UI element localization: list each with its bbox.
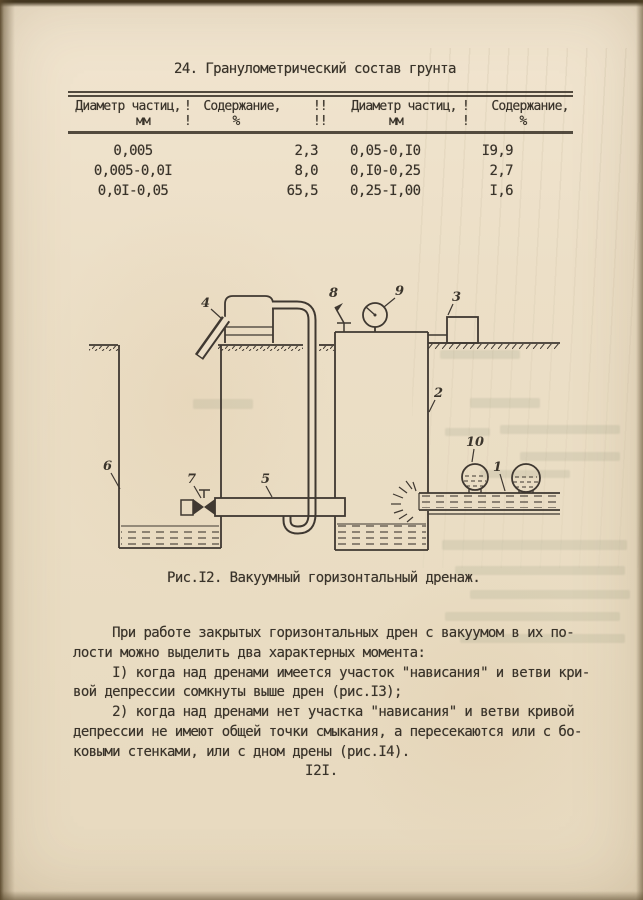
header-separator: !! xyxy=(313,114,327,129)
bleed-through-text xyxy=(470,590,630,599)
figure-label-7: 7 xyxy=(187,472,196,487)
scan-edge-left xyxy=(0,0,15,900)
col2-header-label: Содержание, xyxy=(203,99,281,114)
body-line: При работе закрытых горизонтальных дрен … xyxy=(73,624,593,644)
scanned-page: 24. Гранулометрический состав грунта Диа… xyxy=(0,0,643,900)
table-cell: 0,005 xyxy=(88,143,178,160)
vacuum-gauge xyxy=(363,303,387,332)
table-cell: 0,25-I,00 xyxy=(350,183,440,200)
table-rule-top-1 xyxy=(68,91,573,93)
body-line: депрессии не имеют общей точки смыкания,… xyxy=(73,723,593,743)
bleed-through-text xyxy=(445,612,620,621)
ground-surface-right xyxy=(428,343,560,349)
col3-header-label: Диаметр частиц, xyxy=(348,99,460,114)
table-cell: 2,3 xyxy=(230,143,318,160)
col4-header-label: Содержание, xyxy=(487,99,573,114)
body-line: 2) когда над дренами нет участка "нависа… xyxy=(73,703,593,723)
col4-header-unit: % xyxy=(480,114,566,129)
header-separator: ! xyxy=(184,114,191,129)
header-separator: !! xyxy=(313,99,327,114)
figure-label-3: 3 xyxy=(452,290,461,305)
scan-edge-top xyxy=(0,0,643,7)
body-line: ковыми стенками, или с дном дрены (рис.I… xyxy=(73,743,593,763)
col2-header-unit: % xyxy=(197,114,275,129)
table-cell: 0,I0-0,25 xyxy=(350,163,440,180)
suction-pipe xyxy=(272,305,312,530)
table-cell: 2,7 xyxy=(433,163,513,180)
vacuum-tank xyxy=(335,332,428,550)
scan-edge-right xyxy=(636,0,643,900)
left-well xyxy=(119,345,221,548)
drain-pipe xyxy=(419,493,560,514)
body-line: I) когда над дренами имеется участок "на… xyxy=(73,664,593,684)
table-cell: 8,0 xyxy=(230,163,318,180)
table-rule-header-bottom xyxy=(68,131,573,134)
figure-label-5: 5 xyxy=(261,472,270,487)
figure-caption: Рис.I2. Вакуумный горизонтальный дренаж. xyxy=(167,570,480,586)
col3-header-unit: мм xyxy=(340,114,452,129)
table-cell: I9,9 xyxy=(433,143,513,160)
table-cell: 0,05-0,I0 xyxy=(350,143,440,160)
header-separator: ! xyxy=(462,114,469,129)
header-separator: ! xyxy=(184,99,191,114)
table-cell: 65,5 xyxy=(230,183,318,200)
body-line: лости можно выделить два характерных мом… xyxy=(73,644,593,664)
header-separator: ! xyxy=(462,99,469,114)
table-cell: 0,0I-0,05 xyxy=(88,183,178,200)
valve-8 xyxy=(335,303,351,332)
figure-drainage-diagram: 4 8 9 3 2 6 7 5 10 1 xyxy=(85,283,565,578)
col1-header-unit: мм xyxy=(87,114,199,129)
figure-label-9: 9 xyxy=(395,284,404,299)
figure-label-6: 6 xyxy=(103,459,112,474)
horizontal-pipe-5 xyxy=(215,498,345,516)
figure-label-1: 1 xyxy=(493,460,502,475)
figure-label-8: 8 xyxy=(329,286,338,301)
figure-label-2: 2 xyxy=(433,386,443,401)
water-spray xyxy=(391,481,416,522)
ground-surface-left xyxy=(89,345,118,351)
scan-edge-bottom xyxy=(0,891,643,900)
ground-surface-middle xyxy=(218,345,334,351)
page-number: I2I. xyxy=(0,763,643,779)
collector-box xyxy=(428,317,478,343)
figure-label-10: 10 xyxy=(466,435,484,450)
body-line: вой депрессии сомкнуты выше дрен (рис.I3… xyxy=(73,683,593,703)
body-text: При работе закрытых горизонтальных дрен … xyxy=(73,624,593,763)
table-rule-top-2 xyxy=(68,95,573,97)
figure-label-4: 4 xyxy=(201,296,210,311)
col1-header-label: Диаметр частиц, xyxy=(72,99,184,114)
table-title: 24. Гранулометрический состав грунта xyxy=(174,61,456,77)
table-cell: I,6 xyxy=(433,183,513,200)
table-cell: 0,005-0,0I xyxy=(88,163,178,180)
